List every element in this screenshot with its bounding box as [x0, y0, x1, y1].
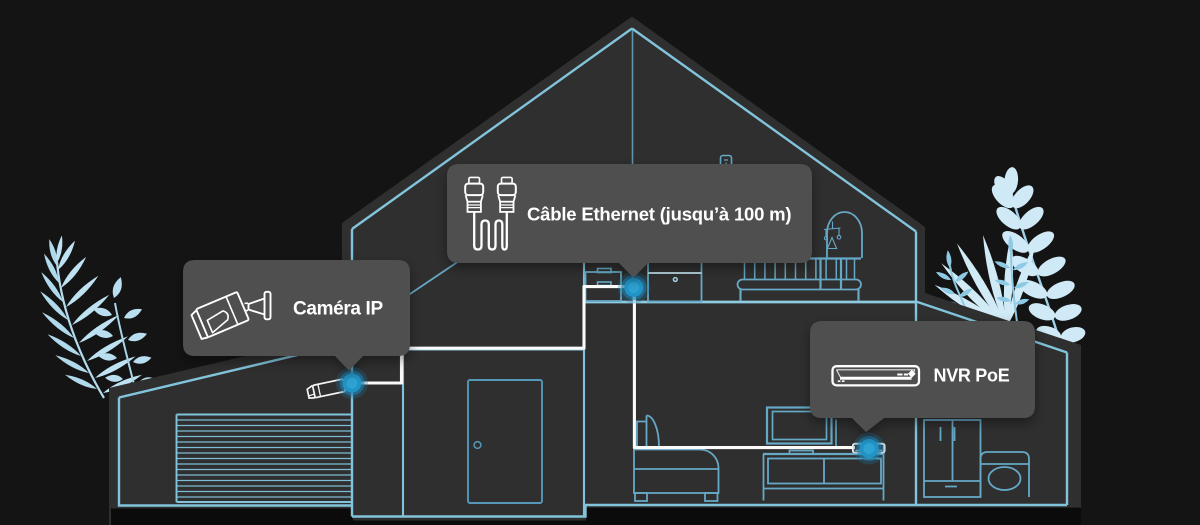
svg-text:Câble Ethernet (jusqu’à 100 m): Câble Ethernet (jusqu’à 100 m) — [527, 204, 791, 225]
svg-text:NVR PoE: NVR PoE — [934, 366, 1010, 386]
svg-text:Caméra IP: Caméra IP — [293, 299, 383, 320]
